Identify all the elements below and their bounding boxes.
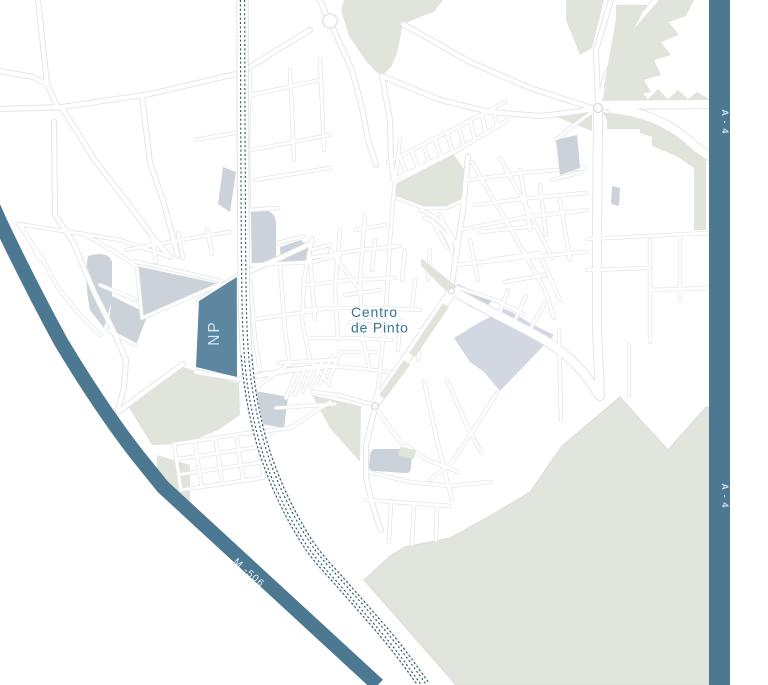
svg-text:Centro: Centro (351, 304, 398, 320)
svg-text:de Pinto: de Pinto (351, 320, 409, 336)
svg-text:A - 4: A - 4 (720, 483, 730, 508)
svg-text:NP: NP (206, 320, 223, 346)
svg-text:A - 4: A - 4 (720, 109, 730, 134)
